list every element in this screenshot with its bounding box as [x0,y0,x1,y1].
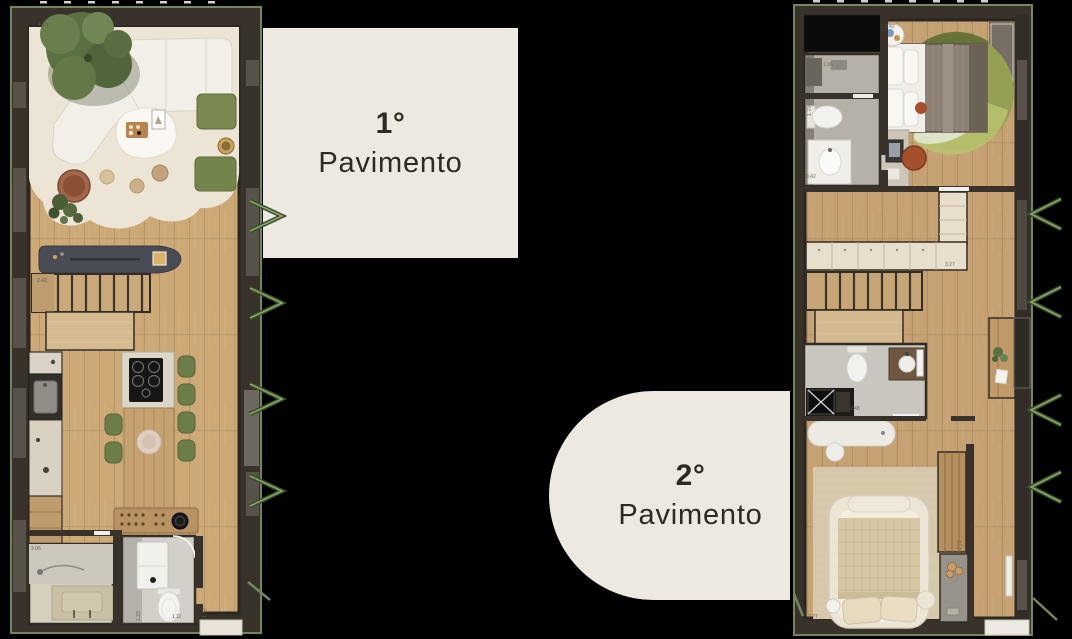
sideboard [114,508,198,533]
floor2-number: 2° [676,459,706,493]
closet-dark [804,15,881,52]
bathroom-middle [804,344,926,418]
serving-tray [126,122,148,138]
stair-counter [39,246,181,273]
glass-door [244,390,259,466]
threshold-step [985,620,1029,635]
dimension-label: 1.11 [172,614,182,620]
washer [806,388,854,416]
floor2-title: Pavimento [618,499,762,532]
kitchen-counter [29,420,62,496]
floor2-label-text: 2° Pavimento [618,459,762,532]
dimension-label: 2.42 [37,278,47,284]
vanity [889,348,925,380]
laundry-bathroom [29,530,122,627]
floor2-label-card: 2° Pavimento [549,391,790,600]
stool [826,443,844,461]
dimension-label: 2.72 [957,540,963,550]
window-awning-icon [1031,472,1061,502]
dimension-label: 1.42 [202,608,208,618]
floor-plan-2: 2.42 1.06 1.70 0.42 3.27 2.48 2.72 2.77 [793,0,1072,639]
dimension-label: 2.42 [885,24,895,30]
closet-gray [940,554,968,622]
dimension-label: 0.42 [806,174,816,180]
side-stool [152,165,168,181]
dimension-label: 2.48 [850,406,860,412]
floor1-number: 1° [376,107,406,141]
dimension-label: 1.23 [136,611,142,621]
ottoman [195,157,236,191]
bathroom [122,536,203,624]
window-awning-icon [1031,395,1061,425]
bed [826,496,935,628]
basin-bowl [172,513,188,529]
window-awning-icon [1031,287,1061,317]
dining-table [124,408,174,508]
stairs [32,274,150,350]
dimension-label: 1.70 [807,106,813,116]
ruler-ticks [40,1,215,4]
floor-plan-1: 4.28 2.42 2.06 1.23 1.42 1.11 [10,0,310,639]
ottoman [197,94,236,129]
bedside-lamp [826,599,840,613]
dimension-label: 1.06 [823,62,833,68]
floor1-label-text: 1° Pavimento [318,107,462,180]
floorplan-canvas: 1° Pavimento 2° Pavimento [0,0,1072,639]
side-stool [100,170,114,184]
dimension-label: 4.28 [38,22,48,28]
living-room [29,12,239,229]
side-stool [130,179,144,193]
kitchen-counter [29,352,62,374]
kitchen-cabinet [29,496,62,544]
window-awning-icon [1031,199,1061,229]
entry-step [200,620,242,635]
dimension-label: 3.27 [945,262,955,268]
ruler-ticks [813,0,988,3]
counter-tray [153,252,166,265]
desk-chair [902,146,926,170]
toilet [847,346,867,382]
dimension-label: 2.77 [808,614,818,620]
cooktop [129,358,163,402]
floor1-title: Pavimento [318,147,462,180]
bed [881,44,987,132]
dimension-label: 2.06 [31,546,41,552]
